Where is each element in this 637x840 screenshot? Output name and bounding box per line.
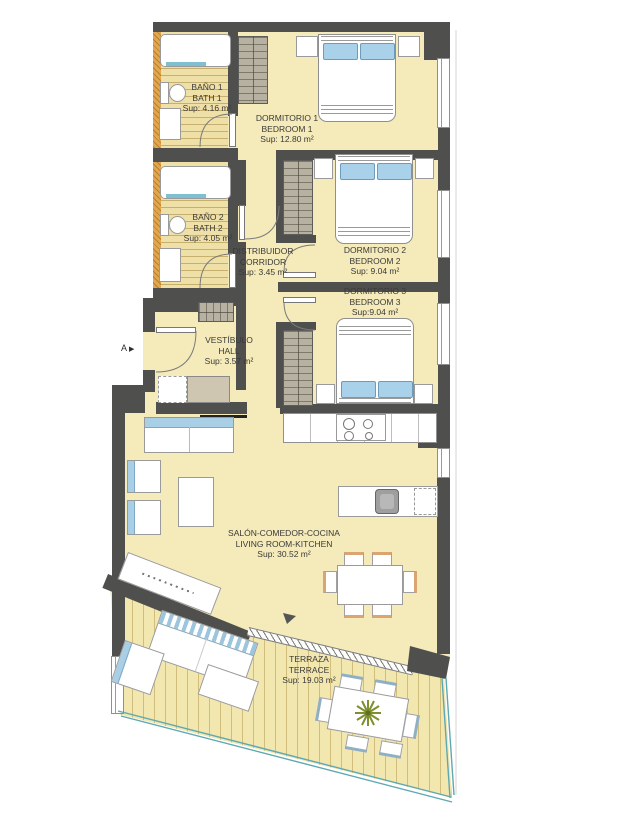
room-name-secondary: BEDROOM 3 [320,297,430,308]
room-name-primary: TERRAZA [264,654,354,665]
wall-corner-block [407,646,450,679]
room-area: Sup: 12.80 m² [217,134,357,145]
room-label-bano1: BAÑO 1 BATH 1 Sup: 4.16 m² [162,82,252,114]
room-label-distribuidor: DISTRIBUIDOR CORRIDOR Sup: 3.45 m² [218,246,308,278]
room-name-primary: SALÓN-COMEDOR-COCINA [214,528,354,539]
room-name-primary: VESTÍBULO [184,335,274,346]
room-name-secondary: BEDROOM 2 [320,256,430,267]
room-label-salon: SALÓN-COMEDOR-COCINA LIVING ROOM-KITCHEN… [214,528,354,560]
room-name-secondary: TERRACE [264,665,354,676]
room-label-dormitorio2: DORMITORIO 2 BEDROOM 2 Sup: 9.04 m² [320,245,430,277]
room-name-secondary: LIVING ROOM-KITCHEN [214,539,354,550]
section-marker: A ▶ [121,343,134,353]
room-name-secondary: HALL [184,346,274,357]
terrace-railing [118,678,454,802]
floor-plan: BAÑO 1 BATH 1 Sup: 4.16 m² DORMITORIO 1 … [0,0,637,840]
room-name-secondary: CORRIDOR [218,257,308,268]
door-swing-arrow-icon [283,613,296,624]
room-area: Sup:9.04 m² [320,307,430,318]
room-label-bano2: BAÑO 2 BATH 2 Sup: 4.05 m² [162,212,254,244]
room-name-primary: DISTRIBUIDOR [218,246,308,257]
room-name-secondary: BATH 1 [162,93,252,104]
room-label-terraza: TERRAZA TERRACE Sup: 19.03 m² [264,654,354,686]
room-label-dormitorio1: DORMITORIO 1 BEDROOM 1 Sup: 12.80 m² [217,113,357,145]
room-label-dormitorio3: DORMITORIO 3 BEDROOM 3 Sup:9.04 m² [320,286,430,318]
section-marker-label: A [121,343,127,353]
room-area: Sup: 3.45 m² [218,267,308,278]
room-area: Sup: 9.04 m² [320,266,430,277]
room-name-secondary: BEDROOM 1 [217,124,357,135]
room-name-primary: DORMITORIO 3 [320,286,430,297]
room-area: Sup: 3.57 m² [184,356,274,367]
room-area: Sup: 19.03 m² [264,675,354,686]
room-name-primary: BAÑO 2 [162,212,254,223]
section-marker-arrow-icon: ▶ [129,346,134,353]
room-name-secondary: BATH 2 [162,223,254,234]
room-name-primary: DORMITORIO 1 [217,113,357,124]
room-name-primary: BAÑO 1 [162,82,252,93]
plant-icon [355,700,381,726]
room-label-vestibulo: VESTÍBULO HALL Sup: 3.57 m² [184,335,274,367]
room-name-primary: DORMITORIO 2 [320,245,430,256]
room-area: Sup: 30.52 m² [214,549,354,560]
room-area: Sup: 4.05 m² [162,233,254,244]
